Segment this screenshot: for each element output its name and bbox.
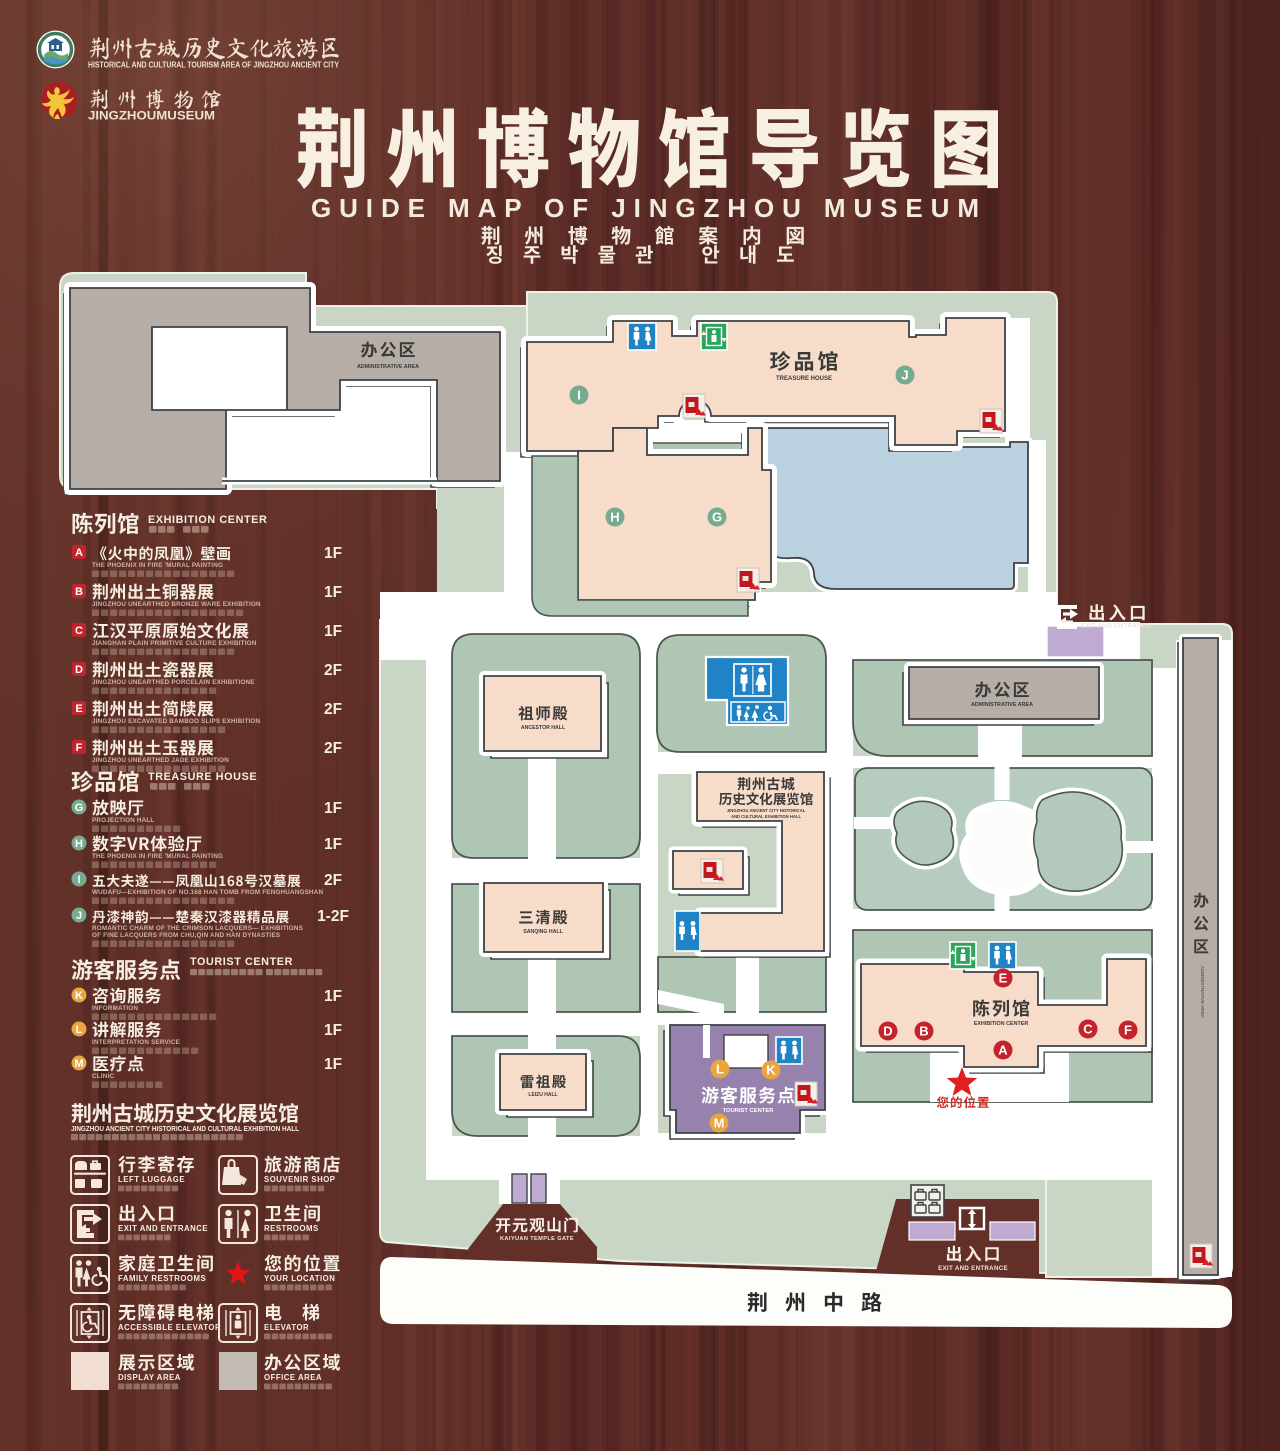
svg-text:EXIT AND ENTRANCE: EXIT AND ENTRANCE xyxy=(118,1224,208,1233)
svg-text:1-2F: 1-2F xyxy=(317,908,349,925)
svg-text:J: J xyxy=(76,910,82,922)
svg-text:EXIT AND ENTRANCE: EXIT AND ENTRANCE xyxy=(1081,623,1152,630)
svg-text:F: F xyxy=(1124,1023,1132,1038)
svg-text:HISTORICAL AND CULTURAL TOURIS: HISTORICAL AND CULTURAL TOURISM AREA OF … xyxy=(88,60,339,70)
svg-text:F: F xyxy=(76,742,83,754)
svg-text:B: B xyxy=(75,586,83,598)
svg-text:THE PHOENIX IN FIRE 'MURAL PAI: THE PHOENIX IN FIRE 'MURAL PAINTING xyxy=(92,853,223,860)
svg-text:JINGZHOUMUSEUM: JINGZHOUMUSEUM xyxy=(88,111,215,123)
svg-text:L: L xyxy=(716,1062,724,1077)
svg-text:J: J xyxy=(901,368,908,383)
svg-text:ELEVATOR: ELEVATOR xyxy=(264,1323,309,1332)
svg-text:OF FINE LACQUERS FROM CHU,QIN: OF FINE LACQUERS FROM CHU,QIN AND HAN DY… xyxy=(92,932,280,939)
svg-text:ANCESTOR HALL: ANCESTOR HALL xyxy=(521,725,566,731)
svg-text:TREASURE HOUSE: TREASURE HOUSE xyxy=(148,771,257,783)
svg-text:JINGZHOU ANCIENT CITY HISTORIC: JINGZHOU ANCIENT CITY HISTORICAL AND CUL… xyxy=(71,1124,300,1133)
svg-text:1F: 1F xyxy=(324,1056,342,1073)
svg-text:JINGZHOU UNEARTHED BRONZE WARE: JINGZHOU UNEARTHED BRONZE WARE EXHIBITIO… xyxy=(92,601,261,608)
svg-text:2F: 2F xyxy=(324,662,342,679)
svg-text:EXIT AND ENTRANCE: EXIT AND ENTRANCE xyxy=(938,1265,1008,1272)
svg-text:I: I xyxy=(77,874,80,886)
svg-text:ADMINISTRATIVE AREA: ADMINISTRATIVE AREA xyxy=(357,364,419,370)
svg-text:PROJECTION HALL: PROJECTION HALL xyxy=(92,817,154,824)
svg-text:JINGZHOU UNEARTHED PORCELAIN E: JINGZHOU UNEARTHED PORCELAIN EXHIBITIONE xyxy=(92,679,255,686)
svg-text:ADMINISTRATIVE AREA: ADMINISTRATIVE AREA xyxy=(1200,966,1205,1019)
svg-text:EXHIBITION CENTER: EXHIBITION CENTER xyxy=(148,514,267,526)
svg-text:SANQING HALL: SANQING HALL xyxy=(523,929,563,935)
svg-text:WUDAFU—EXHIBITION OF NO.168 HA: WUDAFU—EXHIBITION OF NO.168 HAN TOMB FRO… xyxy=(92,889,324,896)
svg-text:JINGZHOU ANCIENT CITY HISTORIC: JINGZHOU ANCIENT CITY HISTORICAL xyxy=(727,808,806,813)
svg-text:AND CULTURAL EXHIBITION HALL: AND CULTURAL EXHIBITION HALL xyxy=(731,814,802,819)
svg-text:H: H xyxy=(75,838,83,850)
svg-text:YOUR LOCATION: YOUR LOCATION xyxy=(264,1274,335,1283)
svg-text:1F: 1F xyxy=(324,545,342,562)
svg-text:G: G xyxy=(712,510,722,525)
svg-text:K: K xyxy=(766,1063,776,1078)
svg-text:M: M xyxy=(74,1058,83,1070)
svg-text:K: K xyxy=(75,990,83,1002)
svg-text:KAIYUAN TEMPLE GATE: KAIYUAN TEMPLE GATE xyxy=(500,1236,574,1242)
svg-text:TREASURE HOUSE: TREASURE HOUSE xyxy=(776,376,832,382)
svg-text:LEIZU HALL: LEIZU HALL xyxy=(528,1092,557,1098)
svg-text:FAMILY RESTROOMS: FAMILY RESTROOMS xyxy=(118,1274,206,1283)
svg-text:E: E xyxy=(75,703,82,715)
svg-text:H: H xyxy=(610,510,619,525)
svg-text:ADMINISTRATIVE AREA: ADMINISTRATIVE AREA xyxy=(971,702,1033,708)
svg-text:ACCESSIBLE ELEVATOR: ACCESSIBLE ELEVATOR xyxy=(118,1323,221,1332)
svg-text:OFFICE AREA: OFFICE AREA xyxy=(264,1373,322,1382)
svg-text:L: L xyxy=(76,1024,83,1036)
svg-text:G: G xyxy=(75,802,84,814)
svg-text:TOURIST CENTER: TOURIST CENTER xyxy=(723,1108,775,1114)
svg-text:ROMANTIC CHARM OF THE CRIMSON: ROMANTIC CHARM OF THE CRIMSON LACQUERS— … xyxy=(92,925,303,932)
svg-text:M: M xyxy=(714,1116,725,1131)
svg-text:1F: 1F xyxy=(324,623,342,640)
svg-text:2F: 2F xyxy=(324,701,342,718)
svg-text:JINGZHOU UNEARTHED JADE EXHIBI: JINGZHOU UNEARTHED JADE EXHIBITION xyxy=(92,757,229,764)
svg-text:CLINIC: CLINIC xyxy=(92,1073,114,1080)
svg-text:THE PHOENIX IN FIRE 'MURAL PAI: THE PHOENIX IN FIRE 'MURAL PAINTING xyxy=(92,562,223,569)
svg-text:C: C xyxy=(75,625,83,637)
svg-text:INTERPRETATION SERVICE: INTERPRETATION SERVICE xyxy=(92,1039,180,1046)
svg-text:1F: 1F xyxy=(324,836,342,853)
svg-text:2F: 2F xyxy=(324,872,342,889)
svg-text:SOUVENIR SHOP: SOUVENIR SHOP xyxy=(264,1175,336,1184)
svg-text:RESTROOMS: RESTROOMS xyxy=(264,1224,319,1233)
svg-text:2F: 2F xyxy=(324,740,342,757)
svg-text:JIANGHAN PLAIN PRIMITIVE CULTU: JIANGHAN PLAIN PRIMITIVE CULTURE EXHIBIT… xyxy=(92,640,257,647)
svg-text:LEFT LUGGAGE: LEFT LUGGAGE xyxy=(118,1175,185,1184)
svg-text:D: D xyxy=(883,1024,892,1039)
svg-text:E: E xyxy=(999,971,1008,986)
svg-text:INFORMATION: INFORMATION xyxy=(92,1005,138,1012)
svg-text:A: A xyxy=(75,547,83,559)
svg-text:1F: 1F xyxy=(324,800,342,817)
svg-text:A: A xyxy=(998,1043,1008,1058)
svg-text:C: C xyxy=(1083,1022,1093,1037)
svg-text:JINGZHOU EXCAVATED BAMBOO SLIP: JINGZHOU EXCAVATED BAMBOO SLIPS EXHIBITI… xyxy=(92,718,261,725)
svg-text:EXHIBITION CENTER: EXHIBITION CENTER xyxy=(974,1021,1029,1027)
svg-text:1F: 1F xyxy=(324,988,342,1005)
svg-text:B: B xyxy=(919,1024,928,1039)
svg-text:I: I xyxy=(577,388,581,403)
svg-text:D: D xyxy=(75,664,83,676)
svg-text:DISPLAY AREA: DISPLAY AREA xyxy=(118,1373,181,1382)
svg-text:TOURIST CENTER: TOURIST CENTER xyxy=(190,956,293,968)
svg-text:1F: 1F xyxy=(324,1022,342,1039)
svg-text:1F: 1F xyxy=(324,584,342,601)
